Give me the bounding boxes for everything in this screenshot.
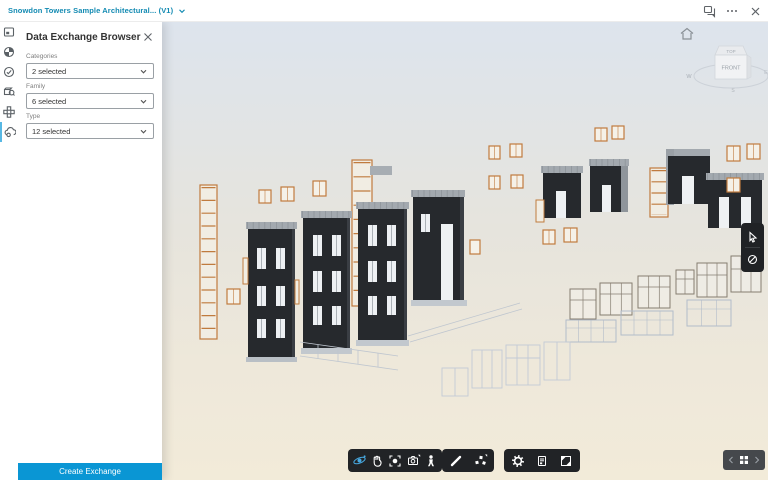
document-title-chevron-down-icon[interactable] <box>178 7 186 15</box>
select-tool-button[interactable] <box>742 225 763 247</box>
fullscreen-button[interactable] <box>554 451 578 470</box>
facade-building-2 <box>301 211 352 354</box>
compass-east-label[interactable]: E <box>764 70 768 76</box>
sidebar-item-extensions[interactable] <box>0 102 18 122</box>
apps-grid-icon[interactable] <box>739 455 749 465</box>
facade-chunk-1 <box>536 166 583 222</box>
sidebar-item-views[interactable] <box>0 22 18 42</box>
camera-interactions-button[interactable] <box>404 451 422 470</box>
facade-building-4 <box>411 190 467 306</box>
first-person-icon <box>424 454 438 468</box>
panel-close-icon[interactable] <box>142 31 154 43</box>
facade-building-3 <box>356 202 409 346</box>
categories-select[interactable]: 2 selected <box>26 63 154 79</box>
type-field: Type 12 selected <box>18 109 162 139</box>
gear-icon <box>511 454 525 468</box>
more-options-icon[interactable] <box>725 4 739 18</box>
orbit-icon <box>352 453 367 468</box>
properties-doc-icon <box>535 454 549 468</box>
facade-chunk-2 <box>589 159 629 212</box>
fullscreen-icon <box>559 454 573 468</box>
document-title[interactable]: Snowdon Towers Sample Architectural... (… <box>8 6 173 15</box>
chevron-down-icon <box>139 97 148 106</box>
circle-slash-icon <box>746 253 759 266</box>
toolbar-dock-pill <box>723 450 765 470</box>
panel-title: Data Exchange Browser <box>26 32 141 43</box>
chevron-down-icon <box>139 127 148 136</box>
feedback-icon[interactable] <box>702 4 716 18</box>
orbit-tool-button[interactable] <box>350 451 368 470</box>
viewcube-front-label: FRONT <box>722 66 742 72</box>
type-label: Type <box>26 113 154 120</box>
close-icon[interactable] <box>748 4 762 18</box>
sidebar-item-model-browser[interactable] <box>0 82 18 102</box>
measure-button[interactable] <box>444 451 468 470</box>
sidebar-item-appearance[interactable] <box>0 42 18 62</box>
curtainwall-ladder-left <box>200 185 217 339</box>
categories-field: Categories 2 selected <box>18 49 162 79</box>
fit-to-view-icon <box>388 454 402 468</box>
camera-icon <box>406 453 421 468</box>
settings-button[interactable] <box>506 451 530 470</box>
3d-viewport[interactable]: TOP FRONT W E S <box>162 22 768 480</box>
clear-selection-button[interactable] <box>742 248 763 270</box>
sidebar-item-data-exchange[interactable] <box>0 122 18 142</box>
categories-select-value: 2 selected <box>32 67 66 76</box>
dock-next-chevron-icon[interactable] <box>754 456 760 464</box>
chevron-down-icon <box>139 67 148 76</box>
app-window: TOP FRONT W E S <box>0 0 768 480</box>
navigation-tool-group <box>348 449 442 472</box>
left-icon-rail <box>0 22 18 480</box>
family-select[interactable]: 6 selected <box>26 93 154 109</box>
family-label: Family <box>26 83 154 90</box>
selection-toolbar <box>741 223 764 272</box>
create-exchange-button[interactable]: Create Exchange <box>18 463 162 480</box>
type-select-value: 12 selected <box>32 127 70 136</box>
type-select[interactable]: 12 selected <box>26 123 154 139</box>
family-field: Family 6 selected <box>18 79 162 109</box>
viewcube-side-face[interactable] <box>747 55 751 79</box>
facade-building-1 <box>243 222 299 362</box>
compass-west-label[interactable]: W <box>686 74 692 80</box>
top-bar: Snowdon Towers Sample Architectural... (… <box>0 0 768 22</box>
settings-tool-group <box>504 449 580 472</box>
explode-icon <box>473 453 488 468</box>
curtainwall-ladder-right <box>650 168 668 217</box>
categories-label: Categories <box>26 53 154 60</box>
pan-hand-icon <box>370 454 384 468</box>
viewcube-top-label: TOP <box>726 49 735 54</box>
fit-to-view-button[interactable] <box>386 451 404 470</box>
model-canvas[interactable]: TOP FRONT W E S <box>162 22 768 480</box>
facade-chunk-3 <box>666 149 710 205</box>
measure-icon <box>449 454 463 468</box>
pan-tool-button[interactable] <box>368 451 386 470</box>
explode-button[interactable] <box>468 451 492 470</box>
cursor-icon <box>746 230 759 243</box>
data-exchange-panel: Data Exchange Browser Categories 2 selec… <box>18 22 162 480</box>
window-controls <box>702 0 762 22</box>
family-select-value: 6 selected <box>32 97 66 106</box>
dock-prev-chevron-icon[interactable] <box>728 456 734 464</box>
measure-tool-group <box>442 449 494 472</box>
panel-header: Data Exchange Browser <box>18 22 162 49</box>
properties-button[interactable] <box>530 451 554 470</box>
sidebar-item-validate[interactable] <box>0 62 18 82</box>
first-person-button[interactable] <box>422 451 440 470</box>
